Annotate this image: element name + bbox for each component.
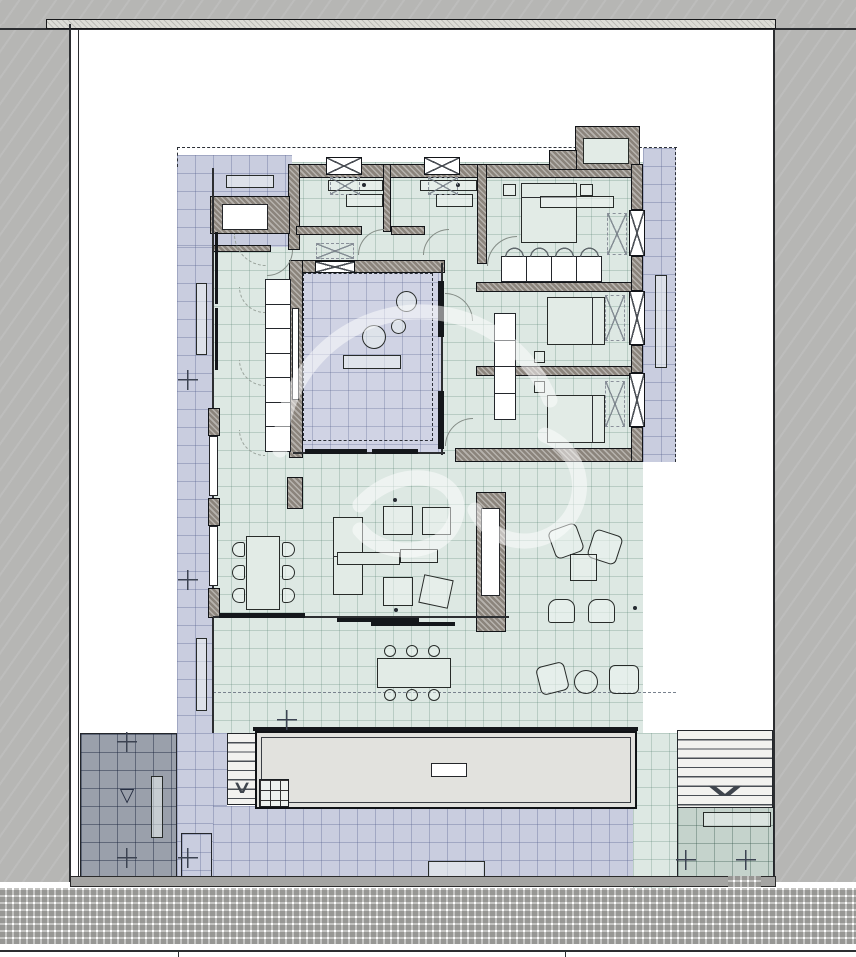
bath2-skylight-mark	[428, 177, 458, 195]
wall-east-4	[631, 427, 643, 462]
bath1-skylight	[326, 157, 362, 175]
lounge-chair-4	[609, 665, 639, 694]
kitchen-column	[287, 477, 303, 509]
planter-east	[655, 275, 667, 368]
courtyard-slider-s2	[372, 449, 418, 454]
street-paving	[0, 888, 856, 944]
gate-south	[728, 876, 761, 887]
site-boundary-right	[773, 30, 775, 882]
survey-cross-1	[178, 370, 198, 390]
lounge-round-table	[574, 670, 598, 694]
bath2-skylight	[424, 157, 460, 175]
terrace-south	[213, 806, 633, 882]
property-dash-right	[675, 147, 677, 462]
window-bed3	[629, 373, 645, 427]
closet-bed1	[502, 256, 602, 282]
survey-cross-8	[736, 850, 756, 870]
neighbor-plot-left	[0, 24, 70, 882]
armchair-3	[383, 577, 413, 606]
street-tick-1	[178, 950, 179, 957]
planter-driveway	[151, 776, 163, 838]
bed-3-pillow-line	[592, 395, 593, 443]
roof-overhang-dash	[213, 692, 676, 694]
wall-bed3-south	[455, 448, 643, 462]
street-tick-2	[565, 950, 566, 957]
bath2-cabinet	[436, 194, 473, 207]
courtyard-window	[315, 261, 355, 273]
terrace-chair-4	[384, 689, 396, 701]
survey-cross-3	[277, 710, 297, 730]
bath2-south-wall	[391, 226, 425, 235]
courtyard-slider-s1	[305, 449, 367, 454]
fireplace-inner	[481, 508, 500, 596]
terrace-chair-2	[406, 645, 418, 657]
fence-top	[46, 19, 776, 29]
wall-east-1	[631, 164, 643, 210]
window-bed2	[629, 291, 645, 345]
lamp-dot-1	[393, 498, 397, 502]
survey-cross-6	[178, 848, 198, 868]
west-pier-1	[208, 408, 220, 436]
courtyard-plant-2	[391, 319, 406, 334]
lounge-side-table	[570, 554, 597, 581]
chimney-inner	[583, 138, 629, 164]
courtyard-plant-3	[396, 291, 417, 312]
floor-plan-canvas: ▽∨∨	[0, 0, 856, 957]
planter-southeast	[703, 812, 771, 827]
lounge-stool-1	[548, 599, 575, 623]
glass-south-slider-1	[219, 613, 305, 618]
neighbor-plot-right	[775, 24, 856, 882]
terrace-chair-6	[428, 689, 440, 701]
survey-cross-2	[178, 570, 198, 590]
bed-2	[547, 297, 605, 345]
glass-south-slider-3	[371, 622, 455, 626]
planter-west-2	[196, 638, 207, 711]
courtyard-slider-e2	[438, 391, 444, 449]
lounge-stool-2	[588, 599, 615, 623]
survey-cross-7	[676, 850, 696, 870]
bed-2-pillow-line	[592, 297, 593, 345]
bed-1	[521, 183, 577, 243]
bed-2-nightstand	[534, 351, 545, 363]
courtyard-bench	[343, 355, 401, 369]
survey-cross-5	[117, 848, 137, 868]
lamp-dot-2	[394, 608, 398, 612]
pool-ladder	[431, 763, 467, 777]
terrace-dining-table	[377, 658, 451, 688]
closet-bedrooms	[494, 314, 516, 420]
site-wall-south	[70, 876, 776, 887]
chimney-step	[549, 150, 577, 170]
dining-table	[246, 536, 280, 610]
west-slider-1	[215, 232, 218, 304]
closet-hall	[265, 280, 291, 452]
dining-chair-3	[232, 588, 245, 603]
terrace-chair-1	[384, 645, 396, 657]
bath1-skylight-mark	[330, 177, 360, 195]
bath-divider-2	[477, 164, 487, 264]
street-edge-line	[0, 950, 856, 952]
lamp-dot-3	[633, 606, 637, 610]
closet-bed1-rail	[502, 244, 602, 257]
site-boundary-left	[69, 24, 71, 882]
stairs-pool-break: ∨	[218, 779, 266, 795]
wall-east-3	[631, 345, 643, 373]
terrace-west	[177, 247, 213, 735]
bath1-faucet	[362, 183, 366, 187]
armchair-2	[422, 507, 451, 535]
window-bed1	[629, 210, 645, 256]
window-mark-bed3	[605, 381, 625, 427]
bed-1-shelf	[540, 196, 614, 208]
courtyard-window-mark	[316, 243, 354, 259]
bath-divider-1	[383, 164, 391, 232]
bed-1-nightstand-left	[503, 184, 516, 196]
dining-chair-2	[232, 565, 245, 580]
bath1-south-wall	[296, 226, 362, 235]
terrace-chair-3	[428, 645, 440, 657]
window-mark-bed2	[605, 295, 625, 341]
bath1-cabinet	[346, 194, 383, 207]
stairs-street-break: ∨	[533, 782, 856, 802]
slope-arrow: ▽	[112, 784, 142, 808]
wall-bed1-bed2	[476, 282, 643, 292]
wall-east-2	[631, 256, 643, 291]
planter-west-1	[196, 283, 207, 355]
courtyard-plant-1	[362, 325, 386, 349]
west-window-2	[209, 526, 218, 586]
armchair-1	[383, 506, 413, 535]
bed-1-nightstand-right	[580, 184, 593, 196]
survey-cross-4	[117, 732, 137, 752]
site-boundary-left-inner	[78, 30, 79, 882]
bed-3	[547, 395, 605, 443]
property-dash-left	[177, 147, 179, 167]
coffee-table	[400, 549, 438, 563]
sofa-chaise	[337, 552, 400, 565]
window-mark-bed1	[607, 213, 627, 255]
dining-chair-1	[232, 542, 245, 557]
courtyard-wall-north	[289, 260, 445, 273]
west-window-1	[209, 436, 218, 496]
pool-side-strip	[633, 733, 677, 888]
courtyard-slider-e1	[438, 281, 444, 337]
west-slider-2	[215, 308, 218, 370]
planter-entry	[226, 175, 274, 188]
courtyard-slide-slot	[292, 308, 299, 400]
entry-door-leaf	[222, 204, 268, 230]
west-pier-2	[208, 498, 220, 526]
armchair-4	[418, 574, 453, 609]
planter-south	[428, 861, 485, 877]
bed-3-nightstand	[534, 381, 545, 393]
terrace-chair-5	[406, 689, 418, 701]
